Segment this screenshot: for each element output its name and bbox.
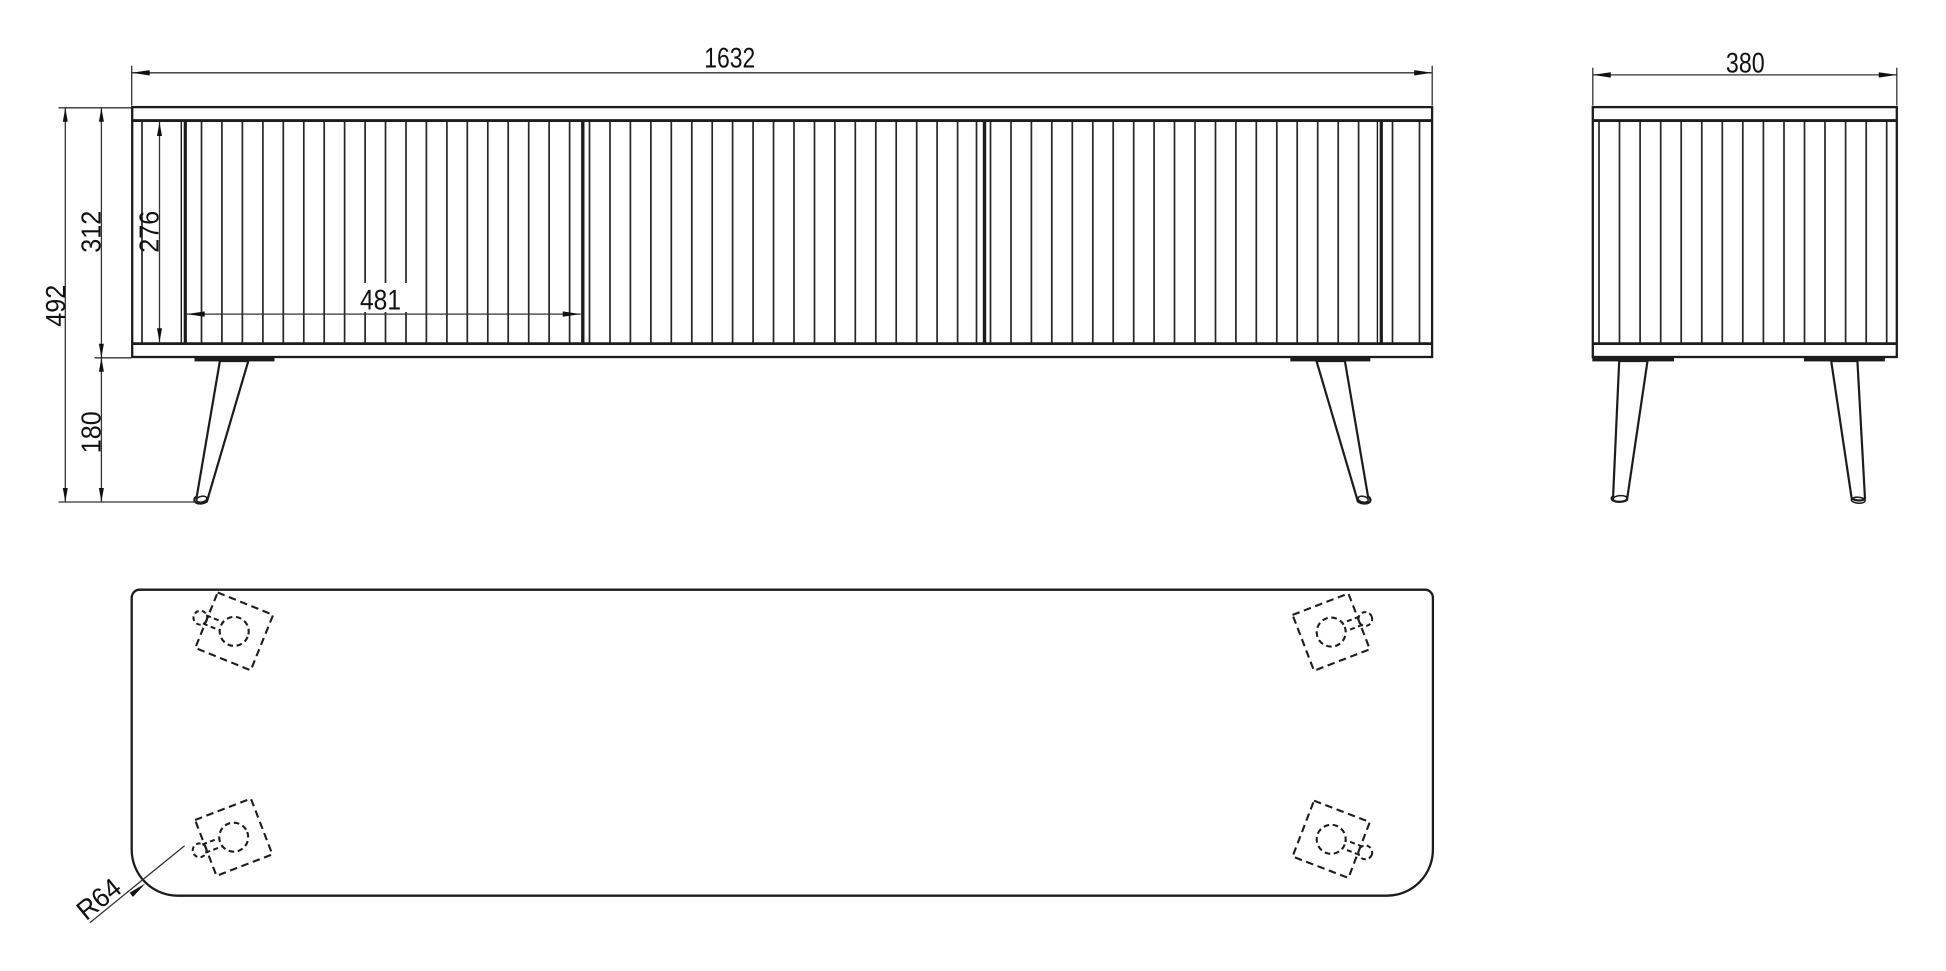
svg-text:481: 481 <box>360 284 401 316</box>
svg-text:312: 312 <box>76 211 107 253</box>
svg-text:276: 276 <box>134 211 165 253</box>
svg-text:180: 180 <box>76 411 107 453</box>
svg-text:492: 492 <box>40 285 71 327</box>
svg-text:1632: 1632 <box>704 42 755 74</box>
svg-text:380: 380 <box>1726 47 1765 79</box>
